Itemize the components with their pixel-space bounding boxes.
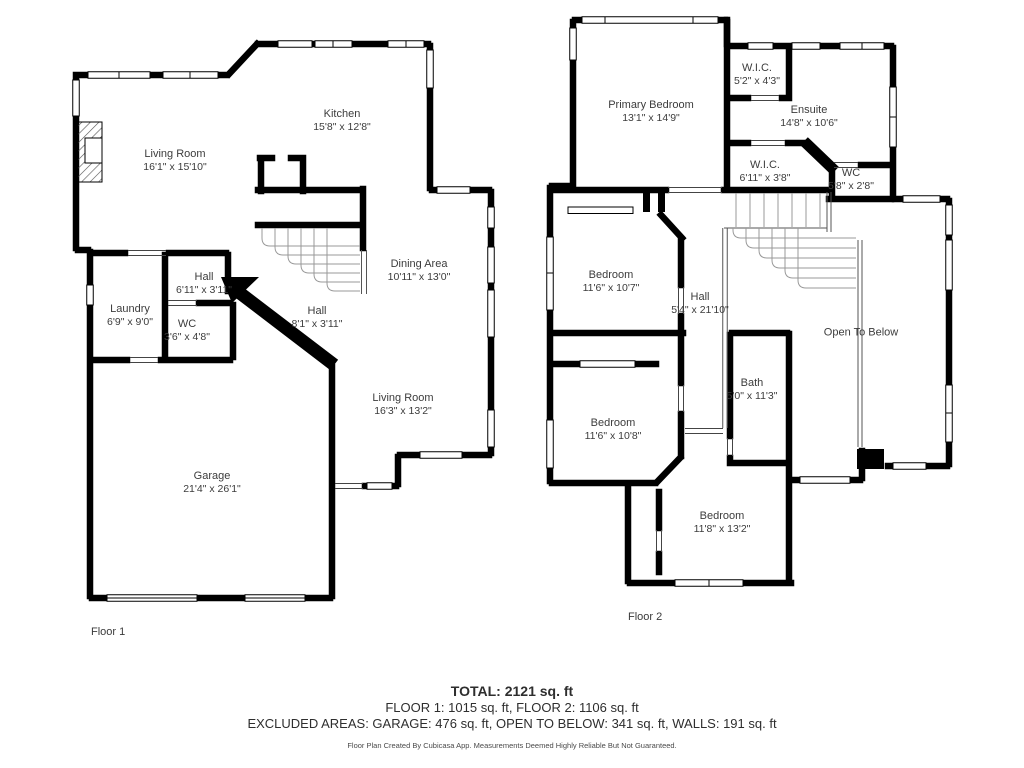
room-name: Open To Below xyxy=(824,327,898,340)
floor2-stairs xyxy=(733,193,856,288)
room-name: Hall xyxy=(671,291,729,304)
room-name: Hall xyxy=(176,271,232,284)
room-name: Laundry xyxy=(107,303,153,316)
floor2-corner-block xyxy=(857,449,884,469)
floor2-open-boundaries xyxy=(723,192,862,447)
room-dims: 5'8" x 2'8" xyxy=(828,180,874,193)
room-dims: 6'9" x 9'0" xyxy=(107,316,153,329)
room-dims: 10'11" x 13'0" xyxy=(388,271,451,284)
room-label-bedroom-3: Bedroom 11'8" x 13'2" xyxy=(694,510,751,536)
room-name: Living Room xyxy=(372,392,433,405)
room-name: Bedroom xyxy=(585,417,642,430)
floor2-wall-stub xyxy=(643,190,650,212)
room-name: WC xyxy=(828,167,874,180)
room-label-wc: WC 3'6" x 4'8" xyxy=(164,318,210,344)
floor1-stairs xyxy=(262,228,367,294)
room-dims: 15'8" x 12'8" xyxy=(313,121,371,134)
room-dims: 16'1" x 15'10" xyxy=(143,161,206,174)
room-dims: 11'6" x 10'8" xyxy=(585,430,642,443)
room-label-bedroom-2: Bedroom 11'6" x 10'8" xyxy=(585,417,642,443)
summary-floors: FLOOR 1: 1015 sq. ft, FLOOR 2: 1106 sq. … xyxy=(0,700,1024,716)
room-dims: 5'2" x 4'3" xyxy=(734,75,780,88)
room-label-bath: Bath 5'0" x 11'3" xyxy=(727,377,778,403)
room-name: Primary Bedroom xyxy=(608,99,694,112)
room-name: WC xyxy=(164,318,210,331)
room-name: W.I.C. xyxy=(734,62,780,75)
room-dims: 16'3" x 13'2" xyxy=(372,405,433,418)
floor1-caption: Floor 1 xyxy=(91,626,125,638)
room-dims: 11'8" x 13'2" xyxy=(694,523,751,536)
room-label-wic-1: W.I.C. 5'2" x 4'3" xyxy=(734,62,780,88)
room-label-bedroom-1: Bedroom 11'6" x 10'7" xyxy=(583,269,640,295)
room-name: Dining Area xyxy=(388,258,451,271)
floor2-caption: Floor 2 xyxy=(628,611,662,623)
room-dims: 5'0" x 11'3" xyxy=(727,390,778,403)
room-dims: 6'11" x 3'11" xyxy=(176,284,232,297)
room-label-wc-2: WC 5'8" x 2'8" xyxy=(828,167,874,193)
summary-total: TOTAL: 2121 sq. ft xyxy=(0,683,1024,700)
room-label-garage: Garage 21'4" x 26'1" xyxy=(183,470,241,496)
room-name: Bath xyxy=(727,377,778,390)
floor-plan-canvas xyxy=(0,0,1024,768)
room-label-ensuite: Ensuite 14'8" x 10'6" xyxy=(780,104,838,130)
room-label-hall-1: Hall 6'11" x 3'11" xyxy=(176,271,232,297)
room-dims: 3'6" x 4'8" xyxy=(164,331,210,344)
room-name: Bedroom xyxy=(694,510,751,523)
room-dims: 21'4" x 26'1" xyxy=(183,483,241,496)
room-label-living-room-2: Living Room 16'3" x 13'2" xyxy=(372,392,433,418)
room-label-hall-2: Hall 8'1" x 3'11" xyxy=(292,305,343,331)
room-name: Ensuite xyxy=(780,104,838,117)
room-label-kitchen: Kitchen 15'8" x 12'8" xyxy=(313,108,371,134)
room-label-living-room: Living Room 16'1" x 15'10" xyxy=(143,148,206,174)
room-dims: 6'11" x 3'8" xyxy=(740,172,791,185)
room-label-open-to-below: Open To Below xyxy=(824,327,898,340)
room-name: W.I.C. xyxy=(740,159,791,172)
floor2-diagonal-wall xyxy=(808,145,831,167)
room-label-hall-3: Hall 5'4" x 21'10" xyxy=(671,291,729,317)
floor-plan-page: Living Room 16'1" x 15'10" Kitchen 15'8"… xyxy=(0,0,1024,768)
room-name: Garage xyxy=(183,470,241,483)
room-name: Living Room xyxy=(143,148,206,161)
room-name: Bedroom xyxy=(583,269,640,282)
floor2-wall-stub xyxy=(658,190,665,212)
summary-excluded: EXCLUDED AREAS: GARAGE: 476 sq. ft, OPEN… xyxy=(0,716,1024,732)
room-label-dining-area: Dining Area 10'11" x 13'0" xyxy=(388,258,451,284)
room-name: Hall xyxy=(292,305,343,318)
room-dims: 13'1" x 14'9" xyxy=(608,112,694,125)
area-summary: TOTAL: 2121 sq. ft FLOOR 1: 1015 sq. ft,… xyxy=(0,683,1024,750)
room-dims: 14'8" x 10'6" xyxy=(780,117,838,130)
summary-disclaimer: Floor Plan Created By Cubicasa App. Meas… xyxy=(0,741,1024,750)
room-label-primary-bedroom: Primary Bedroom 13'1" x 14'9" xyxy=(608,99,694,125)
room-dims: 11'6" x 10'7" xyxy=(583,282,640,295)
room-dims: 8'1" x 3'11" xyxy=(292,318,343,331)
room-name: Kitchen xyxy=(313,108,371,121)
room-label-wic-2: W.I.C. 6'11" x 3'8" xyxy=(740,159,791,185)
fireplace-symbol xyxy=(78,122,102,182)
room-dims: 5'4" x 21'10" xyxy=(671,304,729,317)
room-label-laundry: Laundry 6'9" x 9'0" xyxy=(107,303,153,329)
